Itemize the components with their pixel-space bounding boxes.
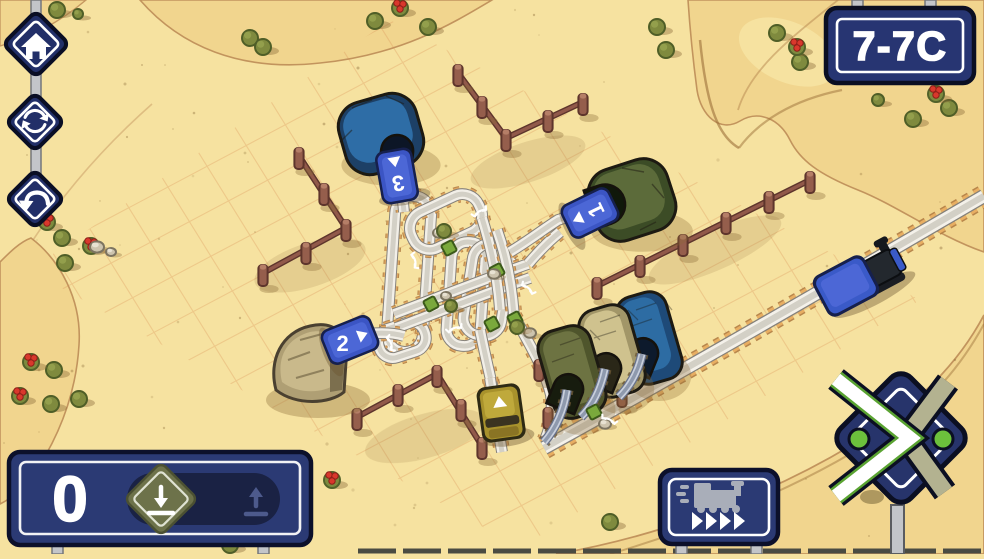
svg-text:2: 2 <box>336 331 348 356</box>
svg-text:0: 0 <box>52 463 88 535</box>
svg-text:7-7C: 7-7C <box>853 23 948 69</box>
